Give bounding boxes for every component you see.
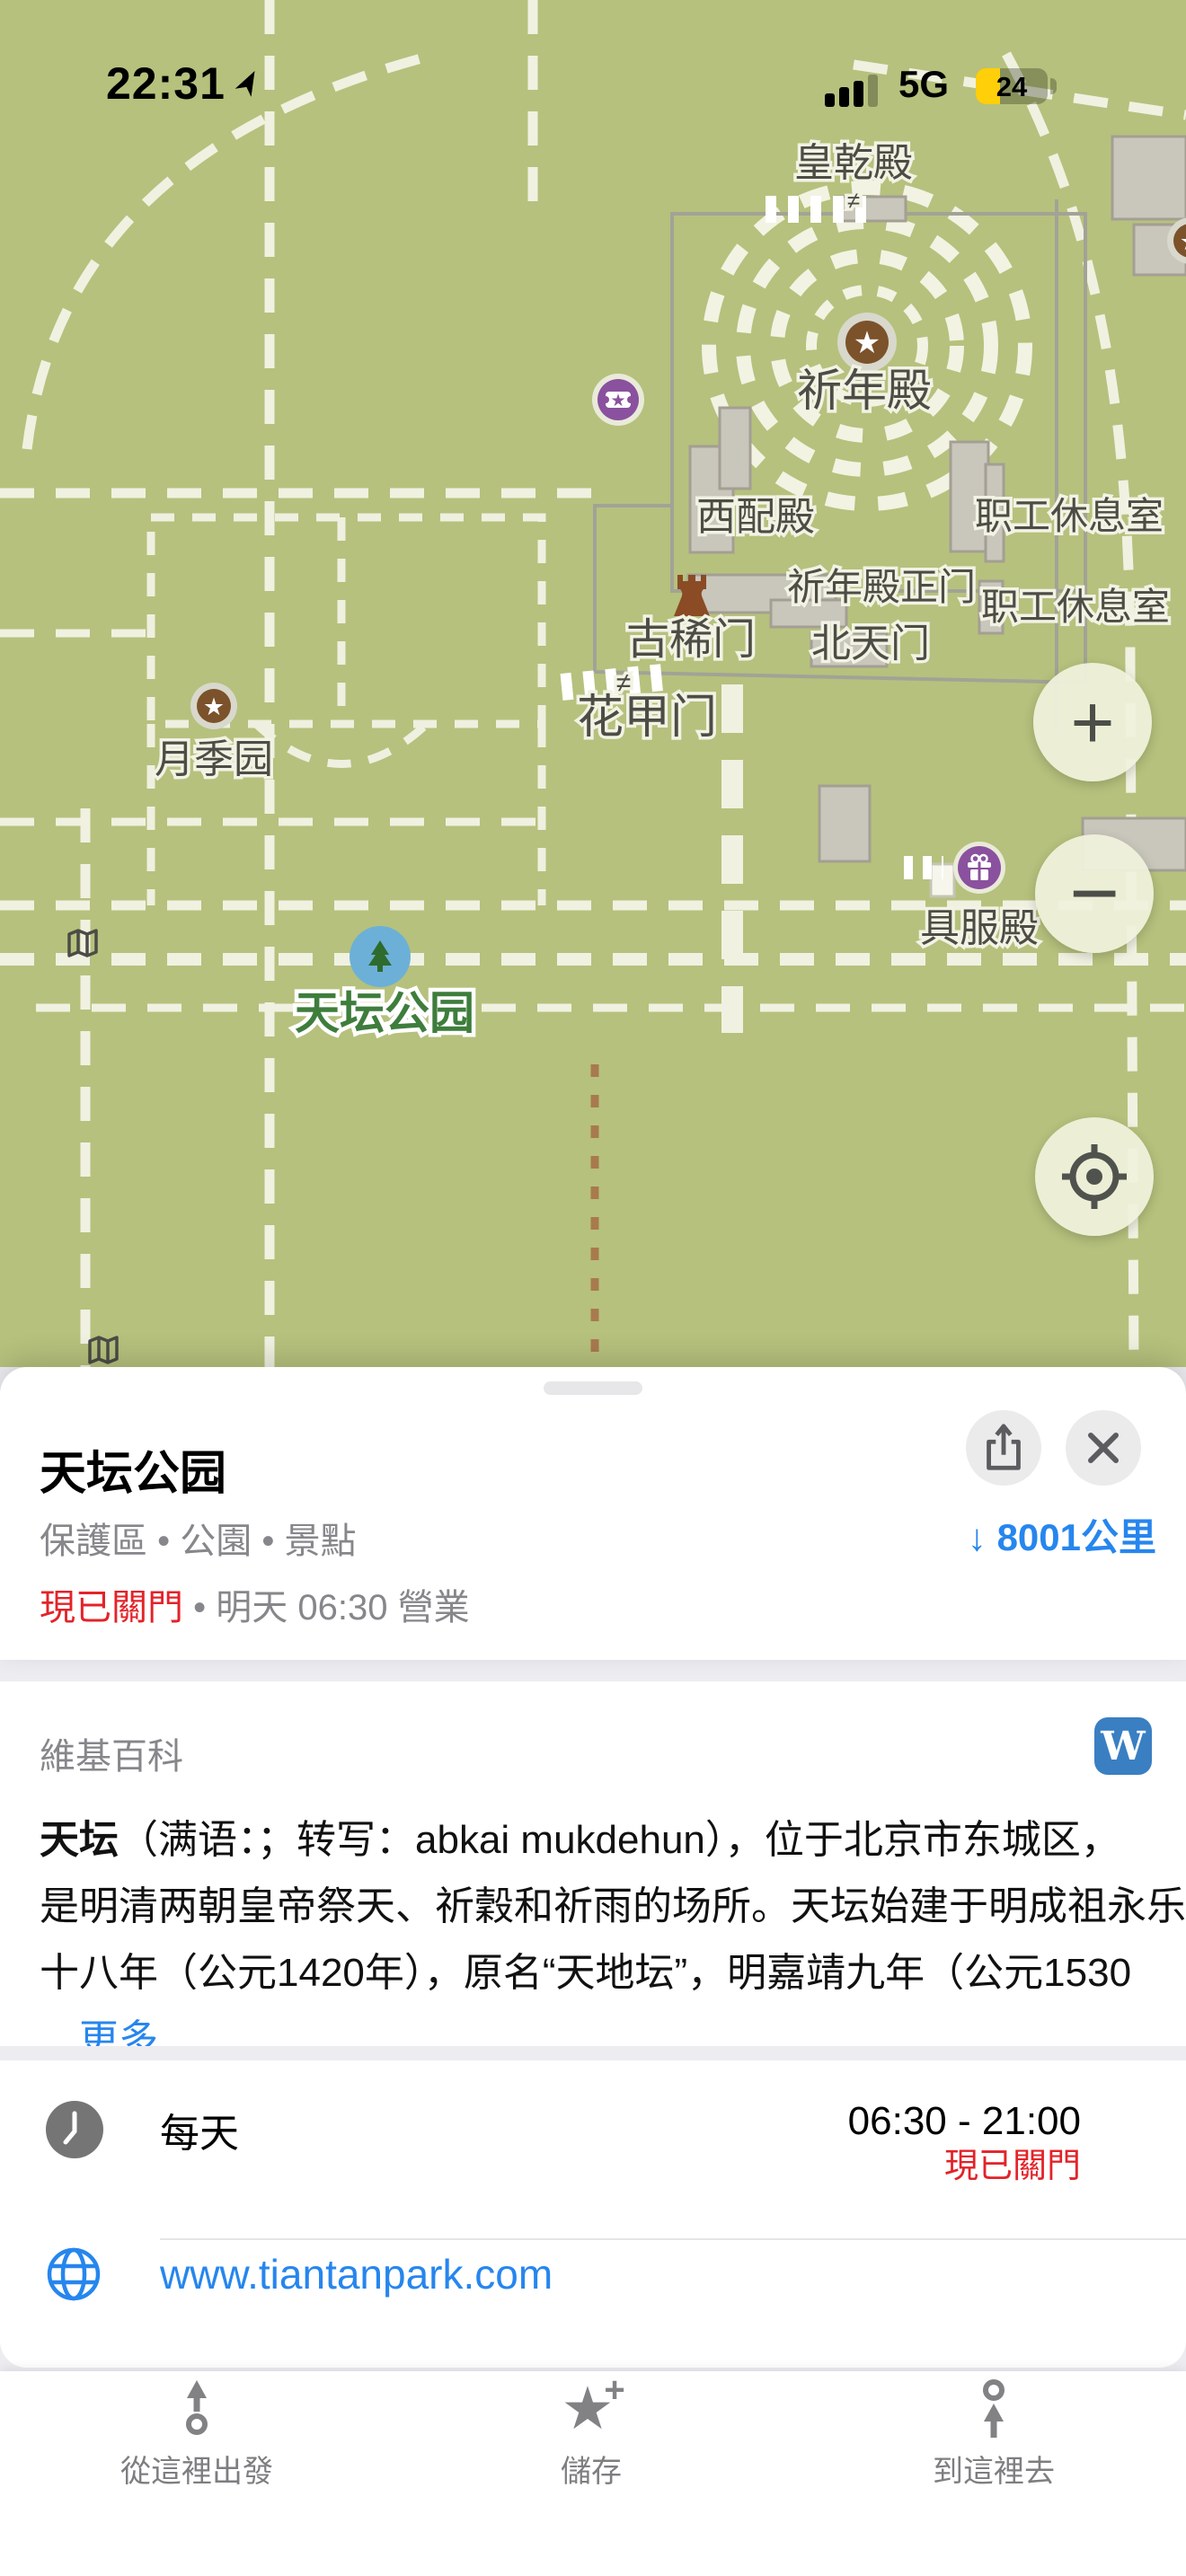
hours-status: 現已關門 <box>944 2138 1081 2187</box>
svg-text:★: ★ <box>610 392 625 410</box>
zoom-out-button[interactable]: − <box>1035 834 1154 953</box>
place-header-card: 天坛公园 保護區 • 公園 • 景點 ↓ 8001公里 現已關門 • 明天 06… <box>0 1367 1186 1660</box>
save-label: 儲存 <box>561 2447 622 2491</box>
map-label-xiuxishi-2[interactable]: 职工休息室 <box>981 586 1170 628</box>
wikipedia-card: 維基百科 W 天坛（满语：；转写：abkai mukdehun），位于北京市东城… <box>0 1681 1186 2046</box>
place-title: 天坛公园 <box>40 1435 226 1503</box>
star-icon: ★ <box>203 693 225 720</box>
signal-bars-icon <box>825 68 884 114</box>
distance-badge: ↓ 8001公里 <box>968 1507 1156 1562</box>
wiki-line-2: 是明清两朝皇帝祭天、祈穀和祈雨的场所。天坛始建于明成祖永乐 <box>40 1874 1154 1940</box>
status-time: 22:31 <box>106 57 226 110</box>
crosshair-icon <box>1057 1139 1132 1214</box>
gate-symbol: ≠ <box>847 187 860 214</box>
map-label-yuejiyuan[interactable]: 月季园 <box>155 737 273 781</box>
wikipedia-icon: W <box>1094 1717 1152 1775</box>
map-label-qiniandian[interactable]: 祈年殿 <box>797 366 932 416</box>
star-icon: ★ <box>1180 228 1186 255</box>
open-status: 現已關門 • 明天 06:30 營業 <box>40 1578 470 1630</box>
distance-value: 8001公里 <box>997 1516 1156 1558</box>
share-button[interactable] <box>966 1410 1041 1486</box>
plus-glyph: + <box>604 2378 624 2410</box>
save-star-icon: ★ + <box>555 2378 627 2439</box>
map-label-zhengmen[interactable]: 祈年殿正门 <box>787 566 976 608</box>
share-icon <box>980 1422 1027 1474</box>
map-label-beitianmen[interactable]: 北天门 <box>811 622 930 666</box>
zoom-in-button[interactable]: + <box>1033 663 1152 781</box>
directions-to-here-button[interactable]: 到這裡去 <box>868 2371 1120 2576</box>
wiki-line-3: 十八年（公元1420年），原名“天地坛”，明嘉靖九年（公元1530 <box>40 1940 1154 2007</box>
location-arrow-icon <box>230 65 266 105</box>
directions-from-here-button[interactable]: 從這裡出發 <box>71 2371 323 2576</box>
map-label-park-name[interactable]: 天坛公园 <box>295 988 474 1038</box>
wiki-line-1-rest: （满语：；转写：abkai mukdehun），位于北京市东城区， <box>119 1818 1120 1862</box>
battery-percent: 24 <box>976 71 1048 103</box>
star-icon: ★ <box>854 326 881 360</box>
wiki-lead: 天坛 <box>40 1818 119 1862</box>
close-button[interactable] <box>1066 1410 1141 1486</box>
poi-ticket-marker[interactable]: ★ <box>592 374 644 426</box>
down-arrow-icon: ↓ <box>968 1516 987 1558</box>
globe-icon <box>45 2245 102 2307</box>
more-link[interactable]: …更多 <box>40 2007 1154 2046</box>
close-icon <box>1084 1428 1123 1468</box>
map-label-xipeidian[interactable]: 西配殿 <box>696 495 815 539</box>
gift-icon <box>968 855 991 880</box>
battery-indicator: 24 <box>976 68 1048 104</box>
poi-gift-marker[interactable] <box>953 842 1005 894</box>
save-button[interactable]: ★ + 儲存 <box>465 2371 717 2576</box>
clock-icon <box>46 2101 103 2163</box>
map-label-huajiamen[interactable]: 花甲门 <box>577 692 717 744</box>
closed-label: 現已關門 <box>40 1588 183 1628</box>
route-from-icon <box>173 2378 220 2439</box>
drag-handle[interactable] <box>544 1381 642 1395</box>
park-marker[interactable] <box>350 926 411 987</box>
wiki-line-1: 天坛（满语：；转写：abkai mukdehun），位于北京市东城区， <box>40 1807 1154 1874</box>
map-label-xiuxishi-1[interactable]: 职工休息室 <box>975 495 1164 537</box>
website-link[interactable]: www.tiantanpark.com <box>160 2250 553 2298</box>
open-info: • 明天 06:30 營業 <box>193 1588 469 1628</box>
wikipedia-letter: W <box>1101 1724 1145 1769</box>
place-category: 保護區 • 公園 • 景點 <box>40 1512 356 1564</box>
wiki-summary: 天坛（满语：；转写：abkai mukdehun），位于北京市东城区， 是明清两… <box>40 1807 1154 2046</box>
poi-qiniandian-marker[interactable]: ★ <box>837 313 897 372</box>
route-to-icon <box>970 2378 1017 2439</box>
plus-icon: + <box>1070 684 1114 760</box>
map-label-jufudian[interactable]: 具服殿 <box>920 906 1039 950</box>
to-here-label: 到這裡去 <box>933 2447 1055 2491</box>
locate-button[interactable] <box>1035 1117 1154 1236</box>
network-type: 5G <box>898 63 949 106</box>
map[interactable]: ★ ★ ★ ★ <box>0 0 1186 1367</box>
info-card: 每天 06:30 - 21:00 現已關門 www.tiantanpark.co… <box>0 2060 1186 2368</box>
map-label-huangqiandian[interactable]: 皇乾殿 <box>794 141 913 185</box>
row-divider <box>160 2238 1186 2240</box>
poi-yuejiyuan-marker[interactable]: ★ <box>190 683 237 729</box>
wiki-section-header: 維基百科 <box>40 1727 183 1779</box>
minus-icon: − <box>1069 851 1120 937</box>
action-toolbar: 從這裡出發 ★ + 儲存 到這裡去 <box>0 2371 1186 2576</box>
map-label-guximen[interactable]: 古稀门 <box>626 616 756 664</box>
from-here-label: 從這裡出發 <box>120 2447 273 2491</box>
hours-days: 每天 <box>160 2101 239 2158</box>
